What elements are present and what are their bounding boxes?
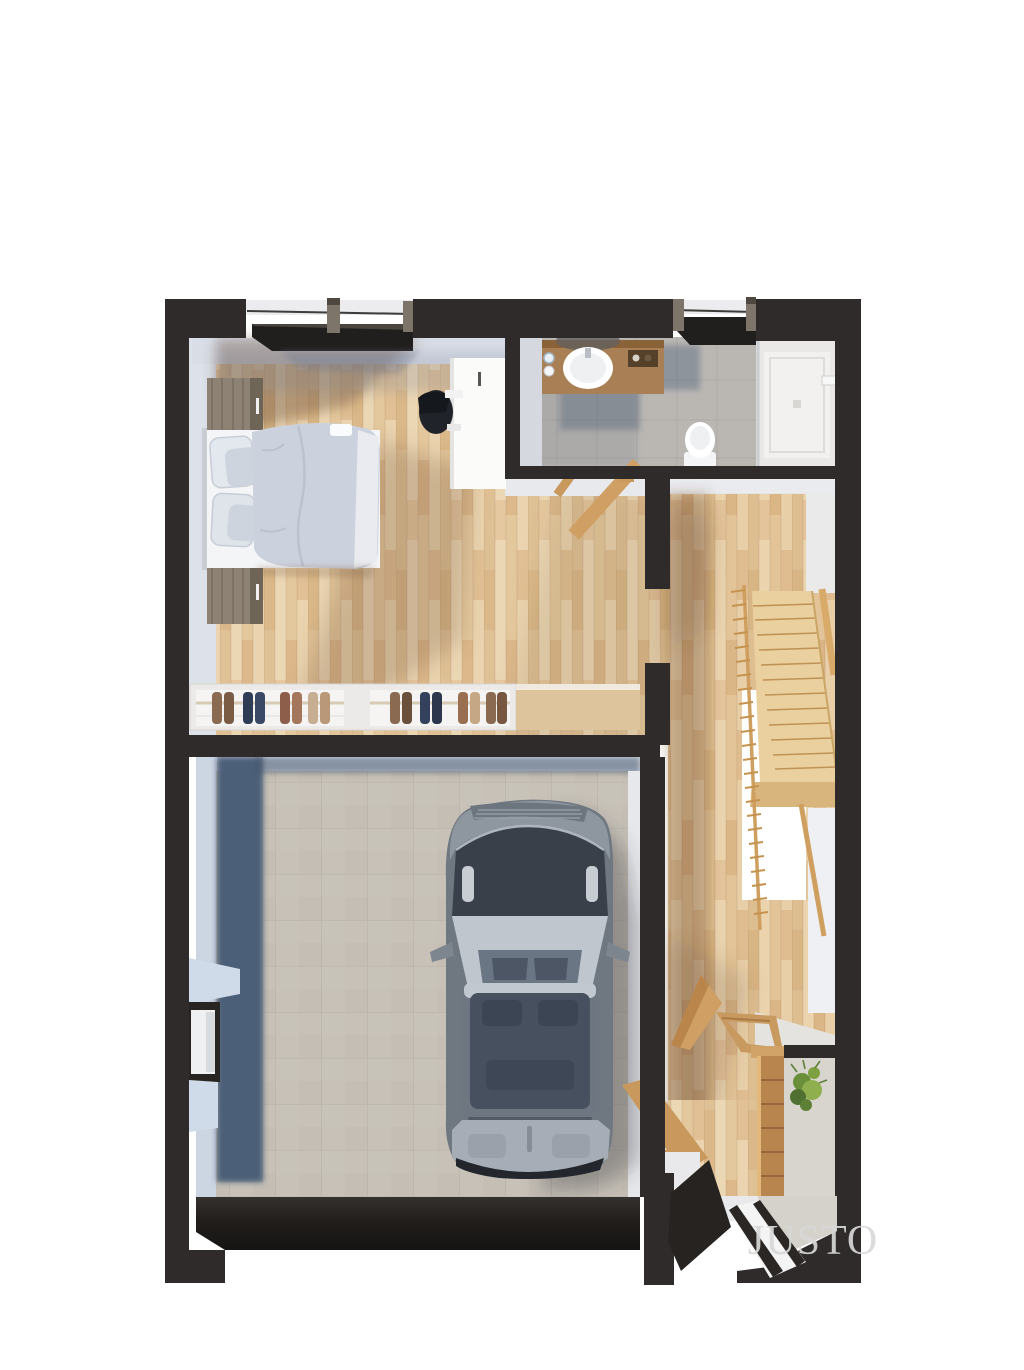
svg-text:JUSTO: JUSTO <box>748 1218 878 1264</box>
